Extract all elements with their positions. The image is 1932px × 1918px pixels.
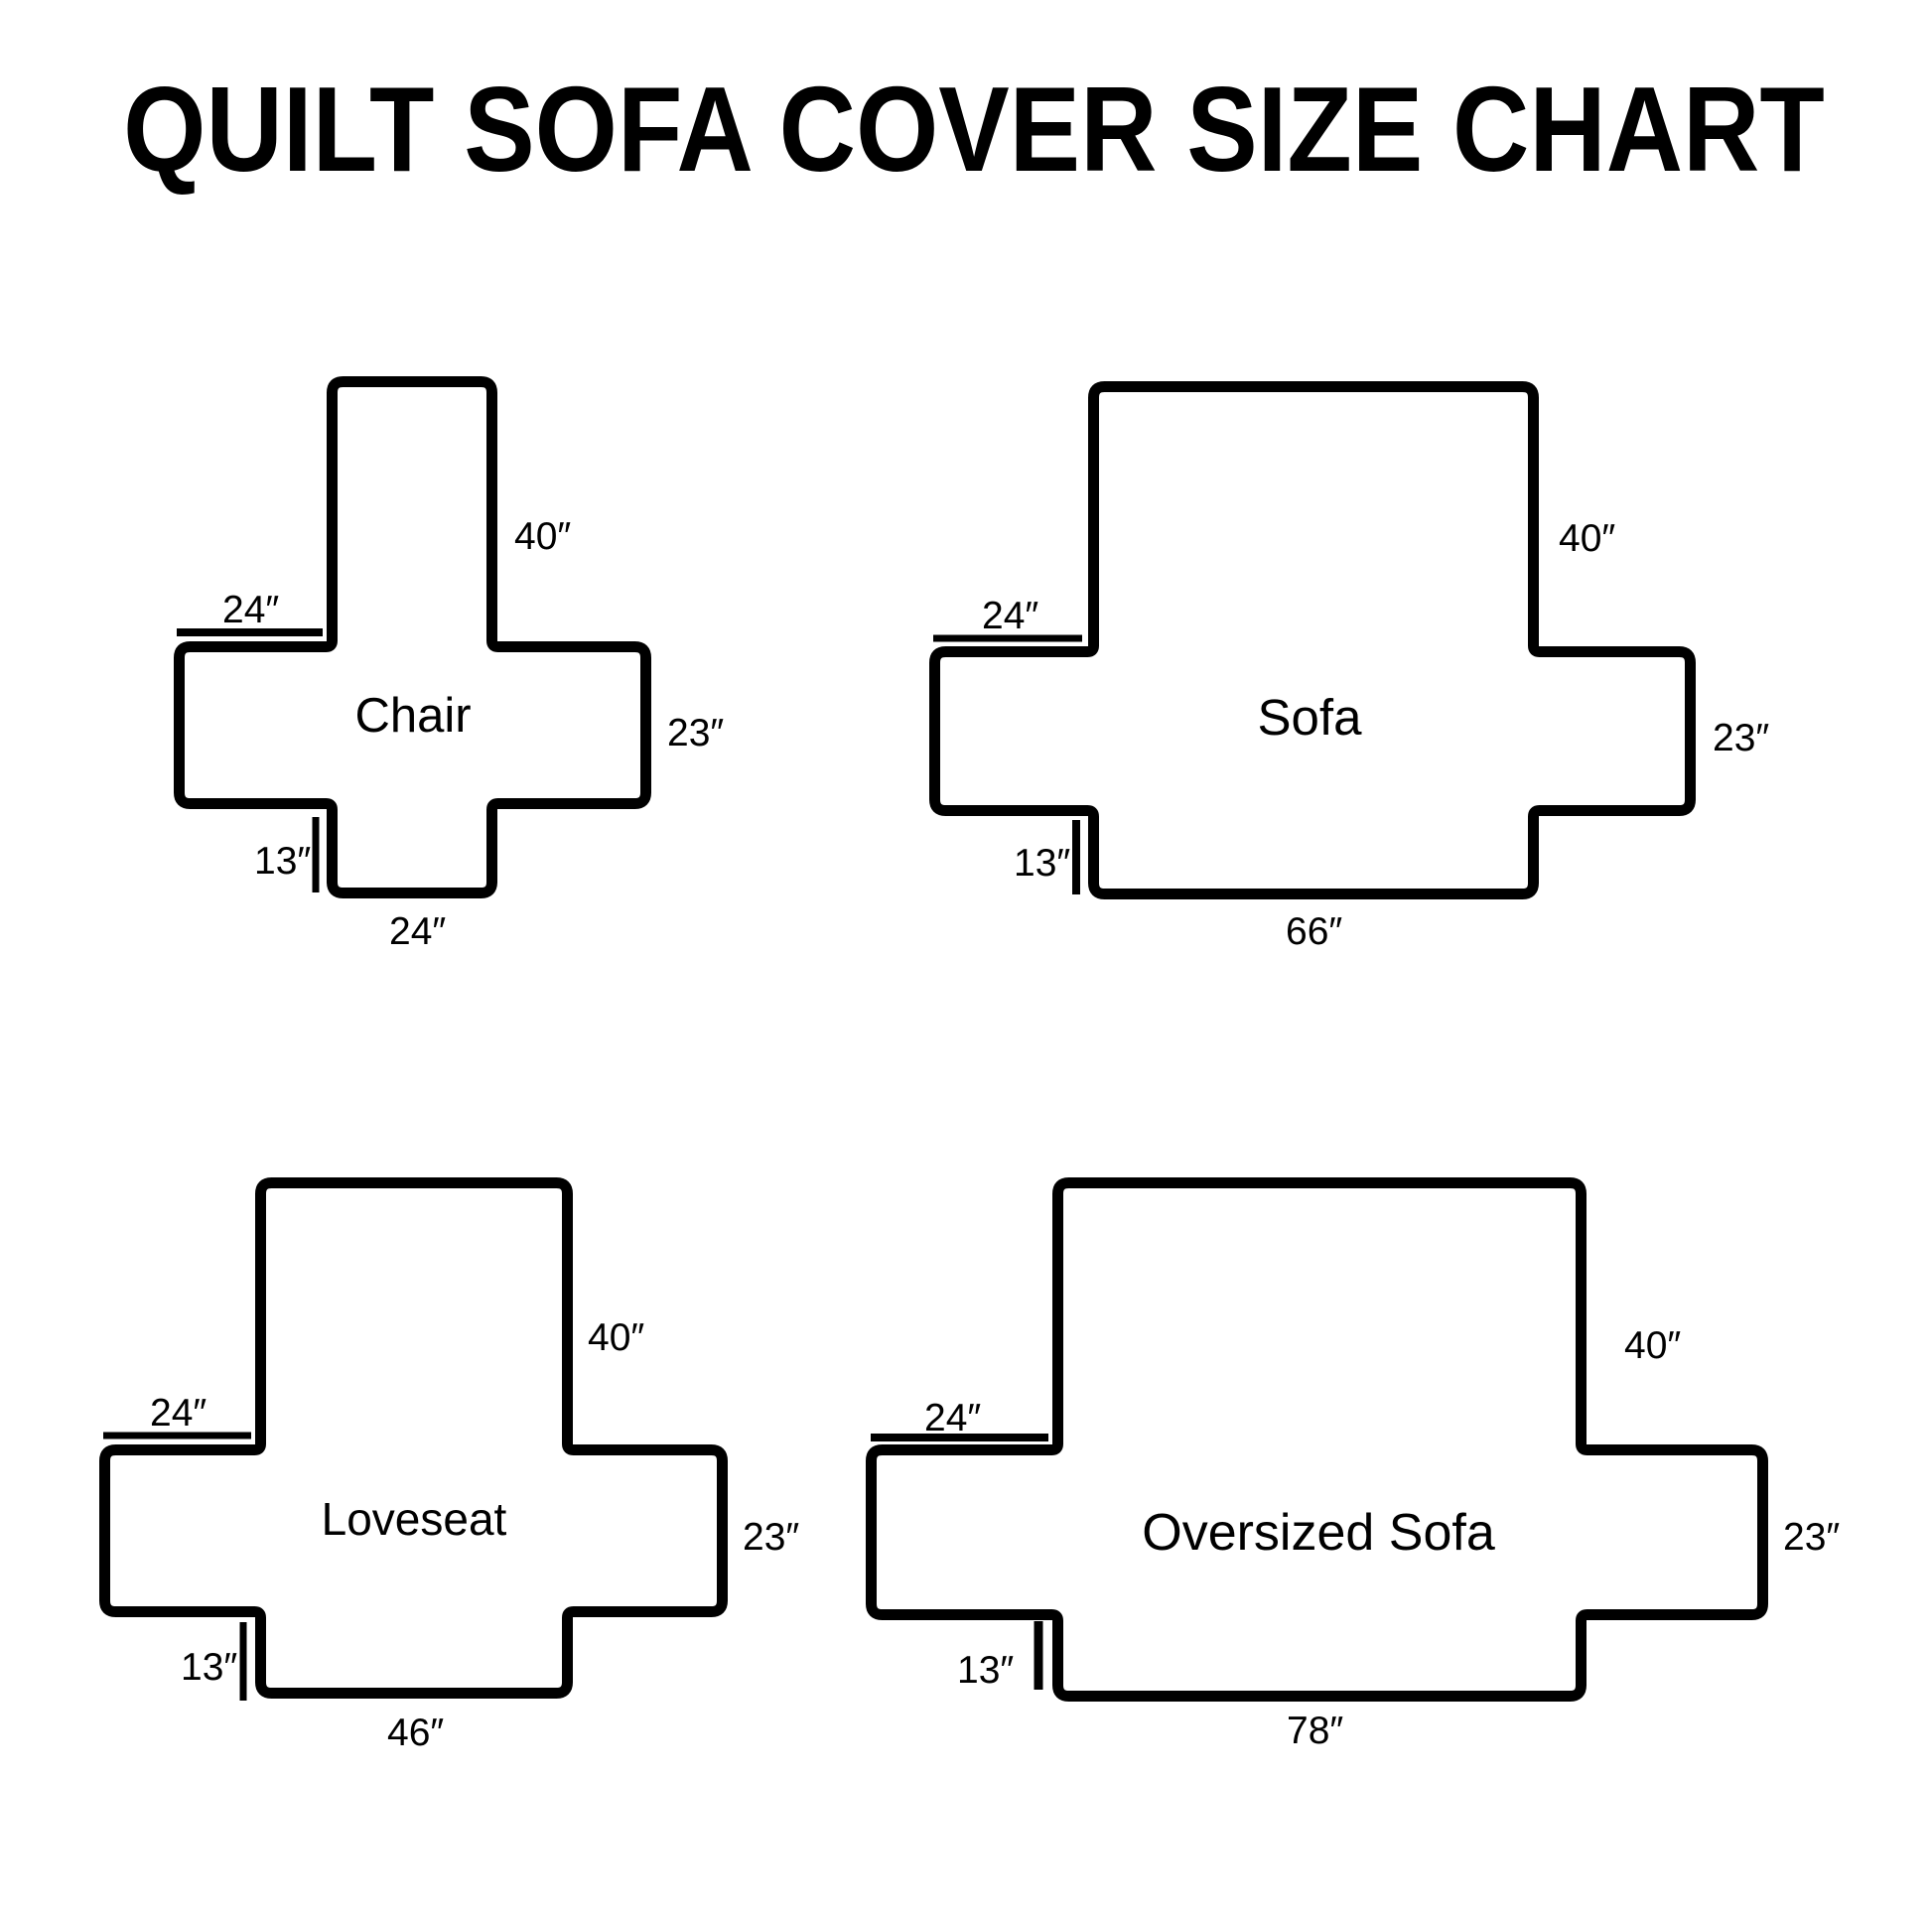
svg-text:13″: 13″ (1014, 842, 1070, 885)
svg-text:23″: 23″ (743, 1516, 799, 1559)
svg-text:23″: 23″ (1713, 717, 1769, 759)
svg-text:QUILT SOFA COVER SIZE CHART: QUILT SOFA COVER SIZE CHART (123, 63, 1825, 198)
svg-text:24″: 24″ (150, 1392, 207, 1435)
svg-text:23″: 23″ (667, 712, 724, 754)
svg-text:Sofa: Sofa (1258, 689, 1363, 746)
svg-text:40″: 40″ (514, 515, 571, 558)
svg-text:13″: 13″ (957, 1649, 1014, 1692)
svg-text:13″: 13″ (254, 840, 311, 883)
svg-text:24″: 24″ (222, 589, 279, 631)
svg-text:23″: 23″ (1783, 1516, 1840, 1559)
svg-text:40″: 40″ (1559, 517, 1615, 560)
svg-text:66″: 66″ (1286, 910, 1342, 953)
svg-text:40″: 40″ (588, 1316, 644, 1359)
svg-text:Oversized Sofa: Oversized Sofa (1142, 1504, 1495, 1562)
svg-text:46″: 46″ (387, 1712, 444, 1754)
svg-text:24″: 24″ (982, 595, 1038, 637)
svg-text:40″: 40″ (1624, 1324, 1681, 1367)
svg-text:Chair: Chair (354, 689, 471, 743)
svg-text:24″: 24″ (924, 1397, 981, 1439)
svg-text:78″: 78″ (1287, 1710, 1343, 1752)
svg-text:24″: 24″ (389, 910, 446, 953)
svg-text:Loveseat: Loveseat (322, 1493, 507, 1545)
svg-text:13″: 13″ (181, 1646, 237, 1689)
